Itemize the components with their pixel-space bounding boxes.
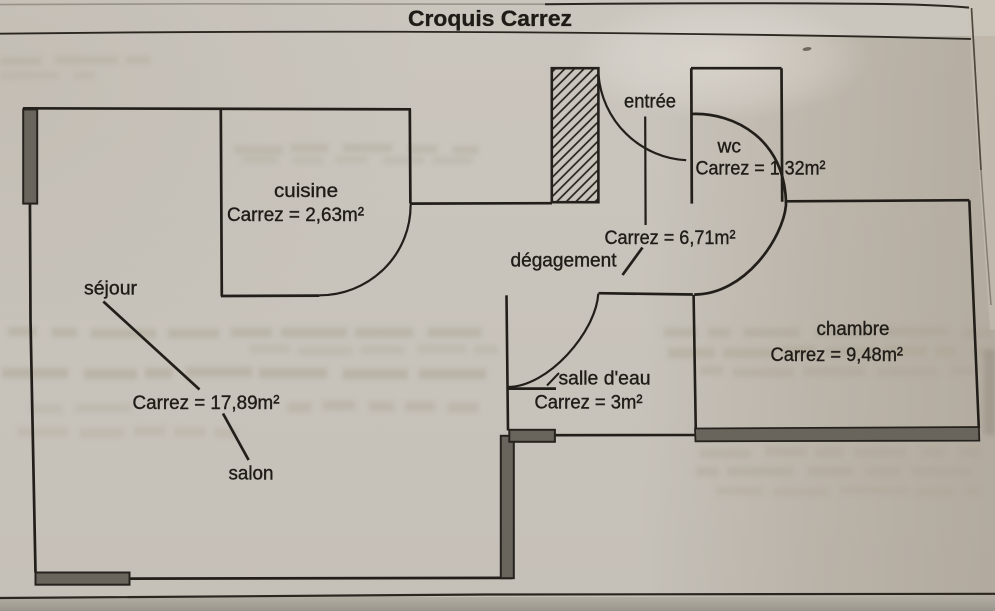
svg-text:wc: wc [717, 136, 742, 158]
svg-text:Carrez = 2,63m²: Carrez = 2,63m² [227, 204, 364, 226]
svg-text:Carrez = 3m²: Carrez = 3m² [535, 392, 643, 414]
svg-text:Carrez = 1,32m²: Carrez = 1,32m² [696, 158, 826, 180]
svg-text:entrée: entrée [624, 91, 676, 113]
svg-text:chambre: chambre [817, 318, 890, 340]
svg-text:cuisine: cuisine [274, 180, 338, 202]
svg-text:salon: salon [229, 463, 274, 485]
svg-text:Carrez = 9,48m²: Carrez = 9,48m² [771, 344, 904, 366]
svg-text:Carrez = 17,89m²: Carrez = 17,89m² [133, 392, 280, 414]
svg-text:Croquis Carrez: Croquis Carrez [408, 6, 572, 31]
svg-text:Carrez = 6,71m²: Carrez = 6,71m² [605, 227, 736, 249]
svg-text:salle d'eau: salle d'eau [559, 368, 651, 390]
svg-text:dégagement: dégagement [511, 250, 617, 272]
svg-text:séjour: séjour [84, 278, 137, 300]
